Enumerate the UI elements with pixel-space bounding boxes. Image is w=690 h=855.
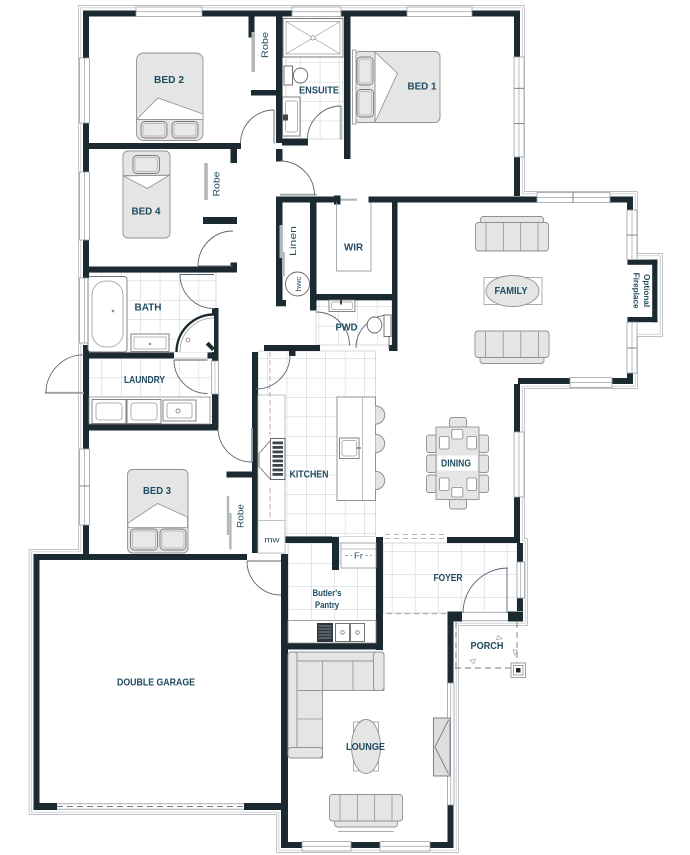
svg-text:BATH: BATH (135, 303, 162, 314)
svg-text:Butler's: Butler's (313, 588, 342, 599)
svg-text:ENSUITE: ENSUITE (299, 86, 339, 97)
svg-text:LOUNGE: LOUNGE (346, 742, 385, 753)
svg-text:Robe: Robe (260, 32, 270, 58)
svg-text:hwc: hwc (294, 276, 303, 291)
svg-text:DINING: DINING (441, 459, 471, 470)
svg-text:BED 1: BED 1 (408, 82, 437, 93)
svg-text:Fireplace: Fireplace (632, 273, 642, 309)
svg-text:DOUBLE GARAGE: DOUBLE GARAGE (117, 678, 195, 689)
svg-text:Robe: Robe (236, 504, 246, 528)
svg-text:WIR: WIR (344, 243, 363, 254)
svg-text:LAUNDRY: LAUNDRY (124, 375, 165, 386)
svg-text:BED 2: BED 2 (154, 75, 184, 86)
svg-text:Robe: Robe (212, 172, 222, 197)
svg-text:Pantry: Pantry (315, 600, 340, 611)
svg-text:FAMILY: FAMILY (495, 286, 528, 297)
svg-text:BED 3: BED 3 (143, 486, 171, 497)
svg-text:PWD: PWD (336, 323, 358, 334)
svg-text:Optional: Optional (642, 274, 652, 307)
svg-text:BED 4: BED 4 (132, 207, 161, 218)
svg-text:mw: mw (265, 535, 281, 545)
svg-text:KITCHEN: KITCHEN (290, 470, 329, 481)
svg-text:Linen: Linen (288, 226, 298, 256)
svg-text:PORCH: PORCH (471, 641, 504, 652)
svg-text:Fr: Fr (354, 551, 363, 561)
svg-text:FOYER: FOYER (434, 573, 464, 584)
